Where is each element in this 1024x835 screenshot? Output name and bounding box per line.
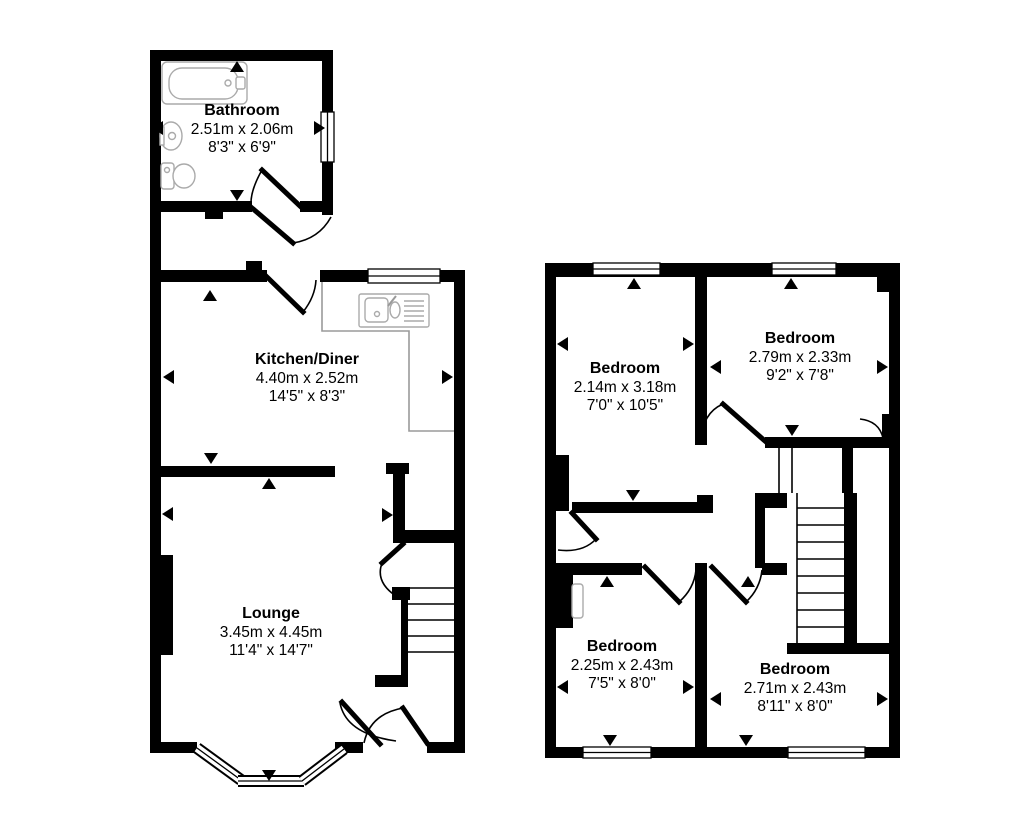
wall-segment — [556, 563, 642, 575]
room-dim-imperial: 14'5" x 8'3" — [269, 388, 345, 405]
ground-floor-plan: Bathroom 2.51m x 2.06m 8'3" x 6'9" Kitch… — [150, 50, 465, 781]
room-dim-metric: 2.14m x 3.18m — [574, 379, 677, 396]
arrow-up-icon — [784, 278, 798, 289]
arrow-left-icon — [557, 337, 568, 351]
arrow-up-icon — [262, 478, 276, 489]
wall-segment — [454, 270, 465, 753]
arrow-down-icon — [739, 735, 753, 746]
wall-segment — [572, 502, 707, 513]
ground-floor-stairs — [408, 588, 454, 652]
room-dim-metric: 3.45m x 4.45m — [220, 624, 323, 641]
bedroom-front-left-door — [558, 513, 596, 551]
room-name: Lounge — [242, 605, 300, 622]
radiator — [572, 584, 583, 618]
room-label-bedroom-back-left: Bedroom 2.25m x 2.43m 7'5" x 8'0" — [571, 638, 674, 692]
room-dim-metric: 2.25m x 2.43m — [571, 657, 674, 674]
bathroom-window — [321, 112, 334, 162]
wall-segment — [150, 742, 197, 753]
room-dim-imperial: 7'0" x 10'5" — [587, 397, 663, 414]
room-name: Kitchen/Diner — [255, 351, 359, 368]
arrow-down-icon — [626, 490, 640, 501]
wall-segment — [150, 50, 333, 61]
room-label-bathroom: Bathroom 2.51m x 2.06m 8'3" x 6'9" — [191, 102, 294, 156]
wall-segment — [150, 466, 335, 477]
room-dim-imperial: 9'2" x 7'8" — [766, 367, 834, 384]
wall-segment — [401, 600, 408, 687]
room-dim-imperial: 7'5" x 8'0" — [588, 675, 656, 692]
first-floor-stairs — [779, 448, 844, 643]
lounge-hall-door — [340, 702, 396, 744]
room-label-lounge: Lounge 3.45m x 4.45m 11'4" x 14'7" — [220, 605, 323, 659]
arrow-down-icon — [230, 190, 244, 201]
wall-segment — [844, 493, 857, 643]
wall-segment — [787, 643, 900, 654]
arrow-up-icon — [627, 278, 641, 289]
bedroom-window — [583, 747, 651, 758]
cupboard-door — [860, 414, 893, 438]
room-dim-metric: 4.40m x 2.52m — [256, 370, 359, 387]
wall-segment — [150, 201, 252, 212]
room-dim-imperial: 11'4" x 14'7" — [229, 642, 313, 659]
kitchen-door — [267, 277, 316, 312]
arrow-left-icon — [162, 507, 173, 521]
room-dim-metric: 2.79m x 2.33m — [749, 349, 852, 366]
arrow-left-icon — [710, 360, 721, 374]
chimney-breast — [877, 263, 900, 292]
room-dim-metric: 2.51m x 2.06m — [191, 121, 294, 138]
wall-segment — [695, 563, 707, 747]
arrow-right-icon — [877, 360, 888, 374]
first-floor-plan: Bedroom 2.14m x 3.18m 7'0" x 10'5" Bedro… — [545, 263, 900, 758]
hall-side-door — [252, 208, 331, 243]
arrow-up-icon — [203, 290, 217, 301]
wall-segment — [392, 587, 410, 600]
arrow-down-icon — [603, 735, 617, 746]
room-dim-imperial: 8'3" x 6'9" — [208, 139, 276, 156]
kitchen-window — [368, 269, 440, 283]
wall-segment — [695, 263, 707, 445]
wall-segment — [842, 448, 853, 493]
arrow-right-icon — [877, 692, 888, 706]
arrow-right-icon — [683, 680, 694, 694]
arrow-up-icon — [741, 576, 755, 587]
room-dim-metric: 2.71m x 2.43m — [744, 680, 847, 697]
arrow-down-icon — [785, 425, 799, 436]
room-name: Bathroom — [204, 102, 280, 119]
bedroom-front-right-door — [701, 404, 765, 442]
room-label-kitchen-diner: Kitchen/Diner 4.40m x 2.52m 14'5" x 8'3" — [255, 351, 359, 405]
wall-segment — [762, 493, 787, 508]
chimney-breast — [150, 555, 173, 655]
arrow-right-icon — [683, 337, 694, 351]
arrow-left-icon — [557, 680, 568, 694]
wall-segment — [386, 463, 409, 474]
wall-segment — [697, 495, 713, 513]
wall-segment — [427, 742, 465, 753]
wall-segment — [889, 263, 900, 758]
wall-segment — [150, 270, 267, 282]
arrow-left-icon — [163, 370, 174, 384]
room-label-bedroom-front-left: Bedroom 2.14m x 3.18m 7'0" x 10'5" — [574, 360, 677, 414]
toilet — [161, 163, 195, 189]
arrow-left-icon — [710, 692, 721, 706]
wall-segment — [762, 563, 787, 575]
wall-segment — [205, 212, 223, 219]
arrow-up-icon — [600, 576, 614, 587]
wall-segment — [393, 474, 405, 535]
bedroom-back-right-door — [712, 567, 762, 602]
floorplan-drawing: Bathroom 2.51m x 2.06m 8'3" x 6'9" Kitch… — [0, 0, 1024, 835]
room-label-bedroom-back-right: Bedroom 2.71m x 2.43m 8'11" x 8'0" — [744, 661, 847, 715]
room-name: Bedroom — [590, 360, 660, 377]
bathroom-door — [251, 170, 300, 206]
chimney-breast — [545, 455, 569, 511]
bedroom-window — [788, 747, 865, 758]
room-dim-imperial: 8'11" x 8'0" — [757, 698, 832, 715]
arrow-right-icon — [442, 370, 453, 384]
wall-segment — [246, 261, 262, 270]
kitchen-sink — [359, 294, 429, 327]
basin — [160, 122, 182, 150]
arrow-down-icon — [204, 453, 218, 464]
room-name: Bedroom — [760, 661, 830, 678]
bedroom-window — [593, 263, 660, 275]
bedroom-window — [772, 263, 836, 275]
room-label-bedroom-front-right: Bedroom 2.79m x 2.33m 9'2" x 7'8" — [749, 330, 852, 384]
arrow-right-icon — [382, 508, 393, 522]
wall-segment — [765, 437, 900, 448]
wall-segment — [375, 675, 402, 687]
bedroom-back-left-door — [645, 567, 696, 602]
wall-segment — [300, 201, 333, 212]
room-name: Bedroom — [587, 638, 657, 655]
room-name: Bedroom — [765, 330, 835, 347]
floorplan-page: Bathroom 2.51m x 2.06m 8'3" x 6'9" Kitch… — [0, 0, 1024, 835]
